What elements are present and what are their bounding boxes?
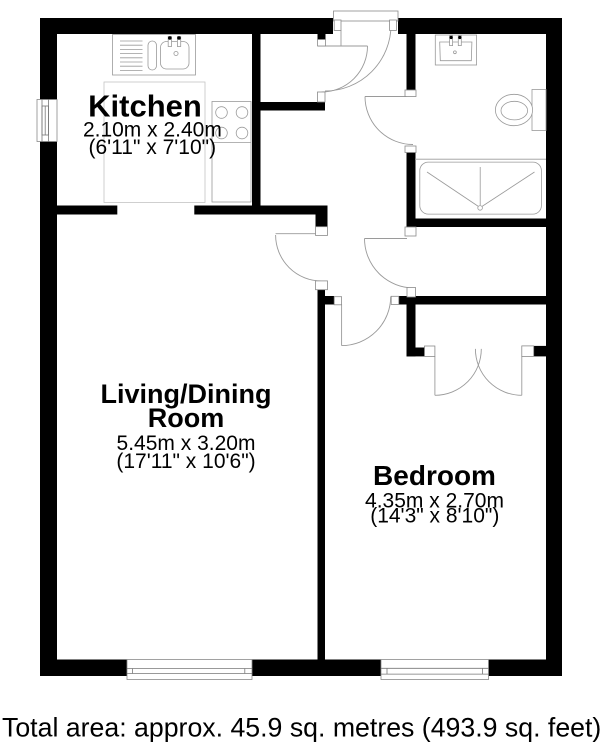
svg-text:(6'11" x 7'10"): (6'11" x 7'10") bbox=[88, 136, 216, 159]
svg-text:(17'11" x 10'6"): (17'11" x 10'6") bbox=[116, 450, 255, 473]
svg-text:Bedroom: Bedroom bbox=[373, 460, 496, 491]
svg-text:Room: Room bbox=[148, 403, 225, 433]
svg-text:Total area: approx. 45.9 sq. m: Total area: approx. 45.9 sq. metres (493… bbox=[2, 713, 601, 742]
svg-text:(14'3" x 8'10"): (14'3" x 8'10") bbox=[370, 505, 499, 528]
